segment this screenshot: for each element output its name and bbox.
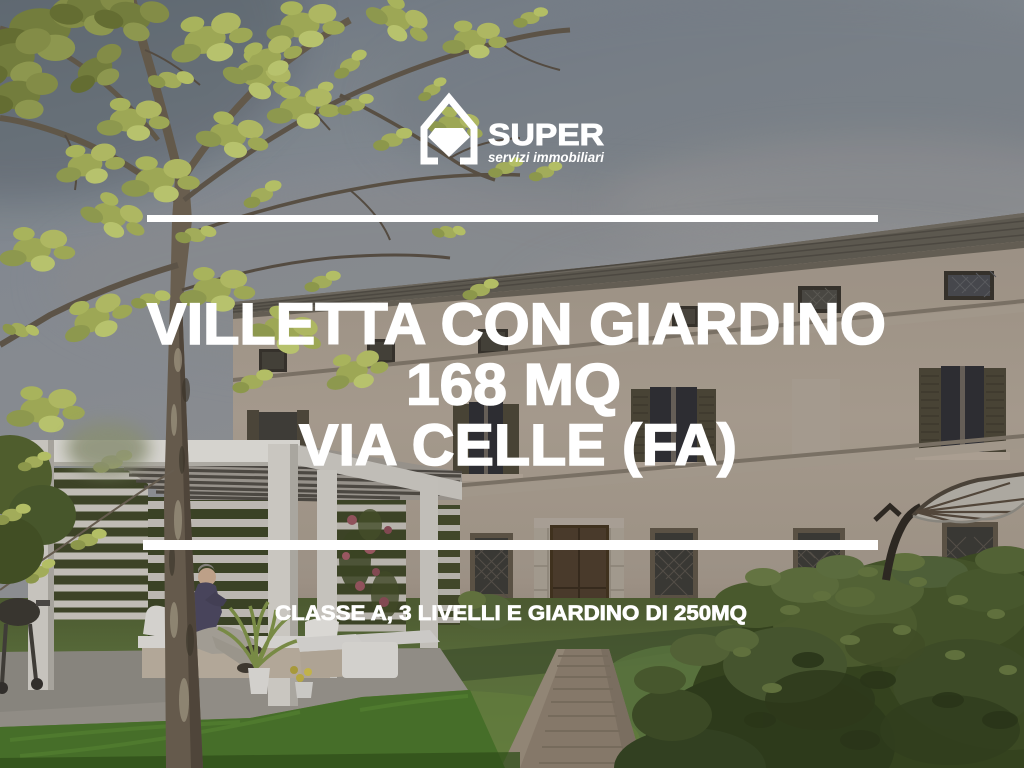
svg-text:SUPER: SUPER — [488, 117, 604, 152]
svg-text:VIA CELLE (FA): VIA CELLE (FA) — [299, 413, 737, 478]
svg-text:168 MQ: 168 MQ — [406, 353, 621, 418]
svg-text:CLASSE A, 3 LIVELLI E GIARDINO: CLASSE A, 3 LIVELLI E GIARDINO DI 250MQ — [275, 601, 747, 625]
svg-text:servizi immobiliari: servizi immobiliari — [488, 150, 604, 165]
svg-text:VILLETTA CON GIARDINO: VILLETTA CON GIARDINO — [147, 292, 886, 357]
